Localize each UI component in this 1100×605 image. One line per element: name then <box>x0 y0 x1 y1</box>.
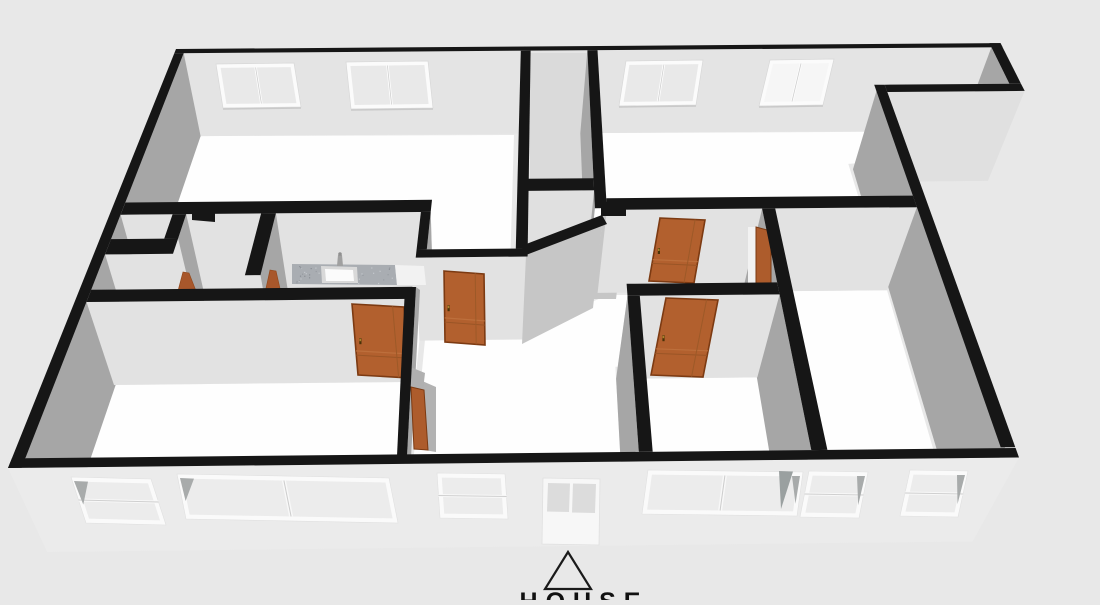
svg-text:HOUSE: HOUSE <box>520 588 649 600</box>
